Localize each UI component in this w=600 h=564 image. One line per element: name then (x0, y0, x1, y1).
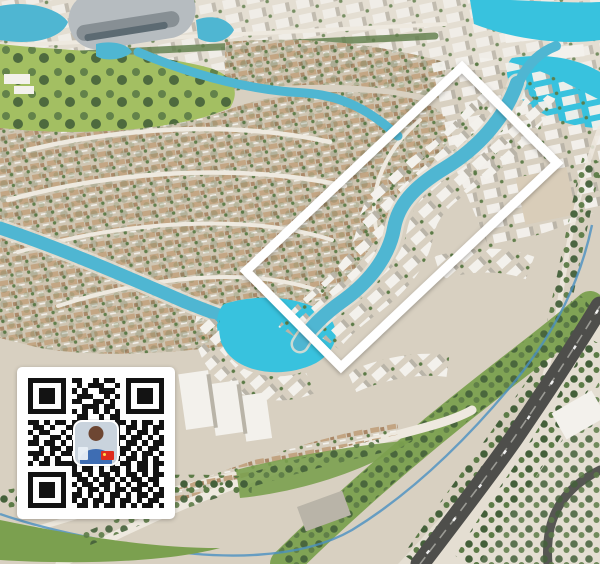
aerial-masterplan-render (0, 0, 600, 564)
clubhouse-building (14, 86, 34, 94)
qr-code (17, 367, 175, 519)
avatar-paper (78, 447, 88, 460)
china-flag-icon (101, 451, 114, 460)
qr-avatar-photo (73, 420, 119, 466)
clubhouse-building (4, 74, 30, 84)
avatar-head (89, 426, 104, 441)
